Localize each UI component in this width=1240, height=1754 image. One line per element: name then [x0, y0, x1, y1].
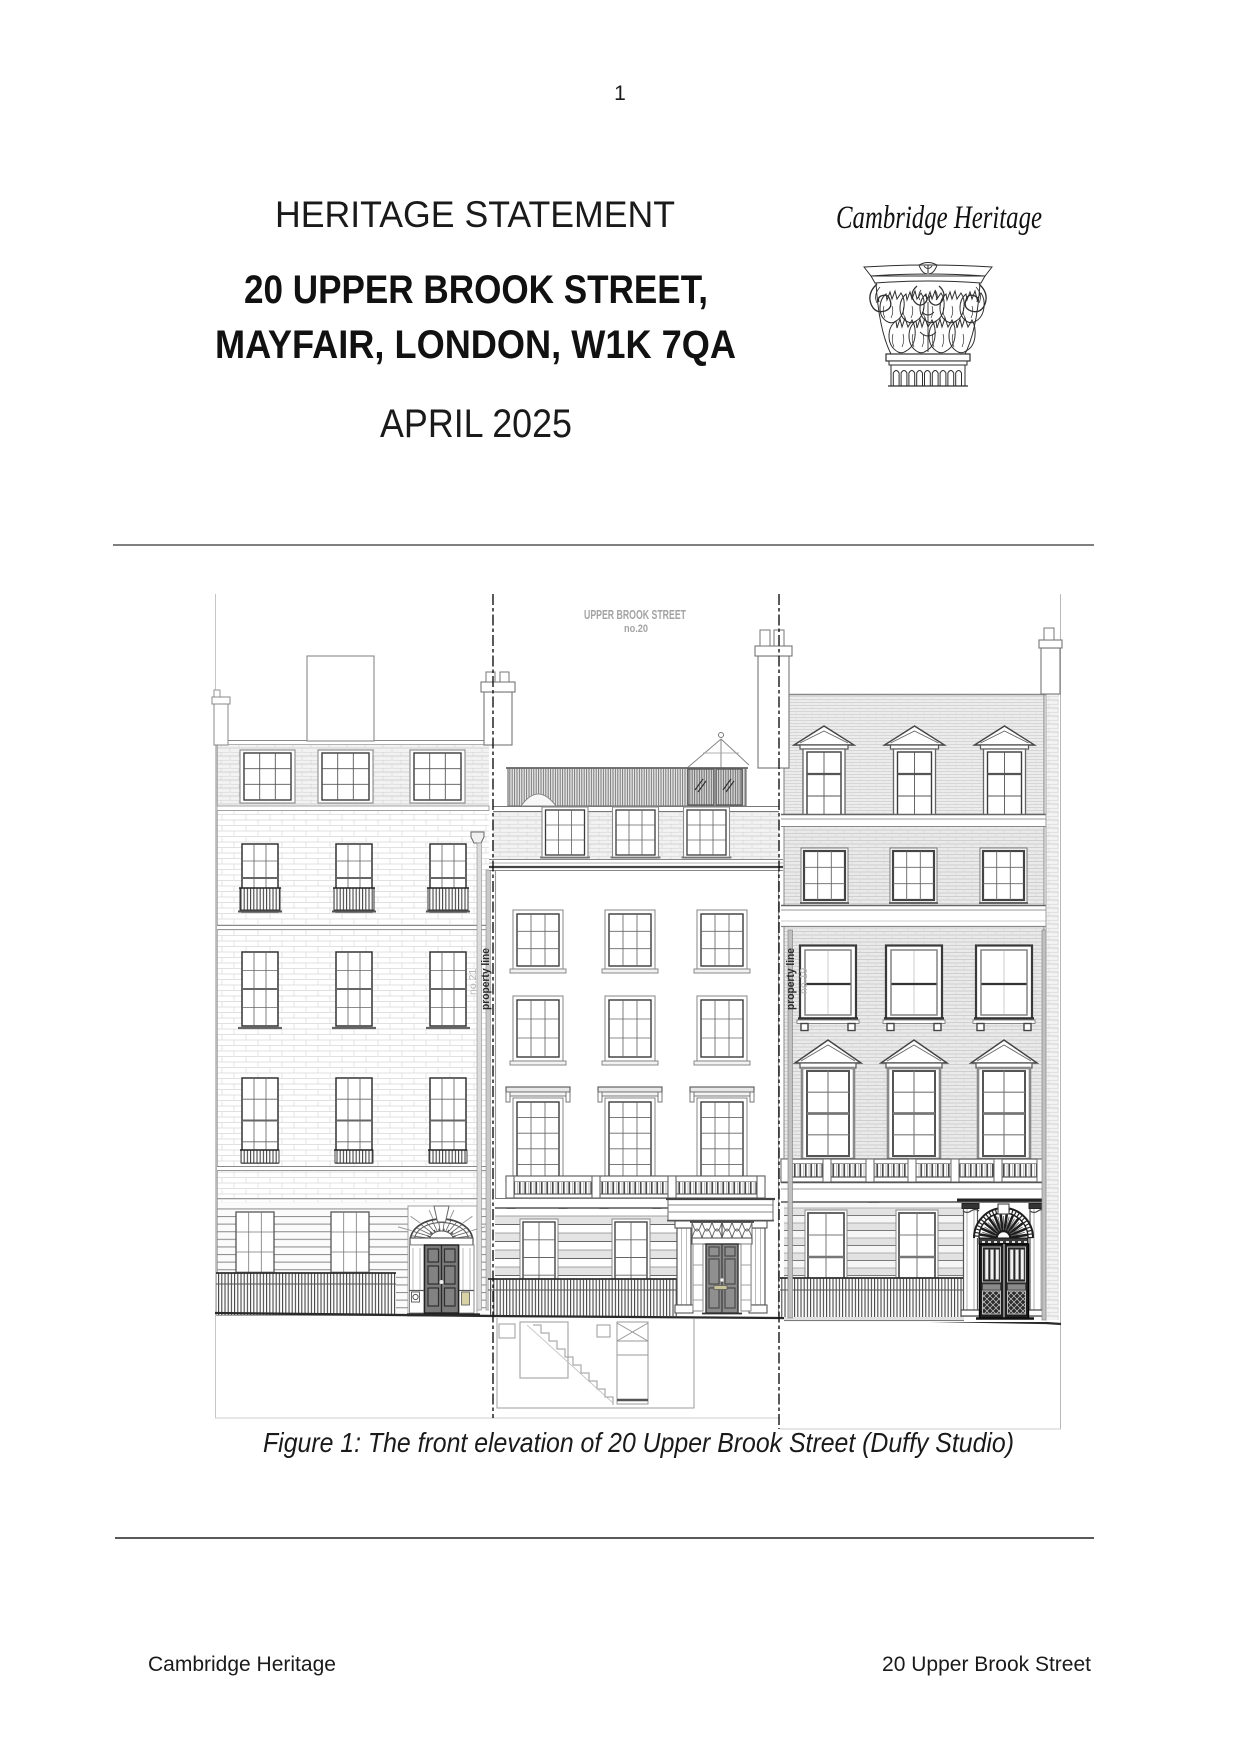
svg-text:20 UPPER BROOK STREET,: 20 UPPER BROOK STREET,: [244, 268, 708, 312]
svg-text:property line: property line: [480, 948, 492, 1010]
svg-text:UPPER BROOK STREET: UPPER BROOK STREET: [584, 608, 686, 622]
svg-text:APRIL 2025: APRIL 2025: [380, 402, 572, 446]
svg-text:Cambridge Heritage: Cambridge Heritage: [148, 1653, 336, 1676]
svg-text:no.19: no.19: [798, 968, 810, 994]
svg-text:no.20: no.20: [624, 623, 648, 635]
svg-text:no.21: no.21: [467, 969, 479, 995]
svg-text:Cambridge Heritage: Cambridge Heritage: [836, 200, 1042, 236]
svg-text:20 Upper Brook Street: 20 Upper Brook Street: [882, 1653, 1091, 1676]
svg-text:1: 1: [614, 82, 626, 105]
svg-text:property line: property line: [785, 948, 797, 1010]
svg-text:HERITAGE STATEMENT: HERITAGE STATEMENT: [275, 194, 675, 235]
svg-text:Figure 1: The front elevation: Figure 1: The front elevation of 20 Uppe…: [263, 1427, 1014, 1458]
svg-text:MAYFAIR, LONDON, W1K 7QA: MAYFAIR, LONDON, W1K 7QA: [215, 323, 736, 367]
